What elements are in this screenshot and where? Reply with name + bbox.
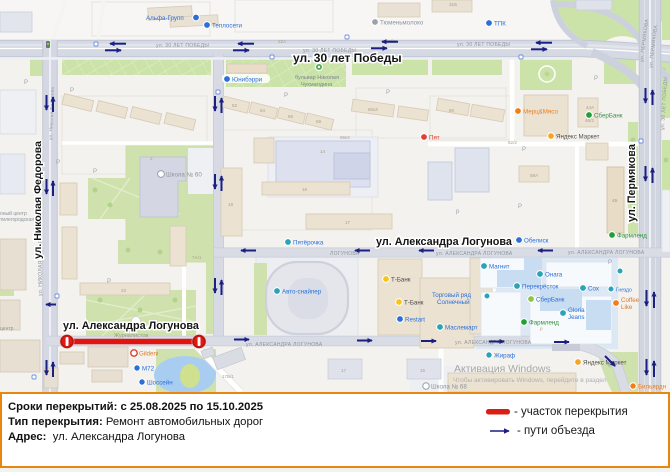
svg-text:17Б/1: 17Б/1 — [222, 374, 234, 379]
svg-text:Обелиск: Обелиск — [524, 238, 549, 245]
svg-text:СберБанк: СберБанк — [536, 297, 565, 304]
svg-text:Журналистов: Журналистов — [114, 333, 148, 339]
svg-text:Маслемарт: Маслемарт — [445, 325, 478, 332]
svg-text:бульвар Николая: бульвар Николая — [295, 75, 339, 81]
svg-text:Яндекс Маркет: Яндекс Маркет — [556, 134, 600, 141]
svg-text:Чукмалдина: Чукмалдина — [301, 82, 333, 88]
svg-text:Шоссейн: Шоссейн — [147, 380, 173, 387]
svg-text:Школа № 60: Школа № 60 — [166, 172, 202, 179]
svg-text:Юнибэрри: Юнибэрри — [232, 77, 263, 84]
svg-text:Пятёрочка: Пятёрочка — [293, 240, 324, 247]
svg-text:ул. АЛЕКСАНДРА ЛОГУНОВА: ул. АЛЕКСАНДРА ЛОГУНОВА — [246, 342, 323, 348]
svg-text:ул. 30 ЛЕТ ПОБЕДЫ: ул. 30 ЛЕТ ПОБЕДЫ — [457, 42, 510, 48]
svg-text:22: 22 — [121, 288, 127, 293]
svg-text:ул. Пермякова: ул. Пермякова — [626, 143, 638, 222]
svg-text:54: 54 — [260, 108, 266, 113]
svg-text:Р: Р — [70, 88, 74, 94]
svg-text:Сох: Сох — [588, 286, 600, 293]
svg-text:62/2: 62/2 — [508, 140, 517, 145]
svg-text:Gloria: Gloria — [568, 307, 585, 314]
svg-text:Теплосети: Теплосети — [212, 23, 243, 30]
svg-text:44А: 44А — [586, 105, 595, 110]
svg-text:18: 18 — [228, 202, 234, 207]
svg-text:Перекрёсток: Перекрёсток — [522, 284, 559, 291]
svg-text:центр: центр — [0, 326, 14, 332]
svg-text:Солнечный: Солнечный — [437, 299, 470, 306]
svg-text:Альфа-Групп: Альфа-Групп — [146, 15, 184, 22]
svg-text:2: 2 — [150, 156, 153, 161]
svg-text:ул. АЛЕКСАНДРА ЛОГУНОВА: ул. АЛЕКСАНДРА ЛОГУНОВА — [436, 251, 513, 257]
svg-text:66к3: 66к3 — [340, 135, 350, 140]
svg-text:Чтобы активировать Windows, пе: Чтобы активировать Windows, перейдите в … — [453, 376, 607, 384]
svg-text:15: 15 — [420, 368, 426, 373]
svg-text:31Б: 31Б — [449, 2, 457, 7]
svg-text:58А: 58А — [530, 173, 539, 178]
svg-text:ул. 30 ЛЕТ ПОБЕДЫ: ул. 30 ЛЕТ ПОБЕДЫ — [156, 43, 209, 49]
svg-text:16: 16 — [302, 187, 308, 192]
svg-text:Пят: Пят — [429, 135, 440, 142]
svg-text:Торговый ряд: Торговый ряд — [432, 292, 471, 299]
svg-text:Школа № 68: Школа № 68 — [431, 384, 467, 391]
svg-text:Т-Банк: Т-Банк — [391, 277, 411, 284]
svg-text:Р: Р — [518, 204, 522, 210]
svg-text:М72: М72 — [142, 366, 155, 373]
svg-text:Р: Р — [284, 93, 288, 99]
svg-text:Gildeni: Gildeni — [139, 351, 158, 358]
svg-text:Мерц&Мясо: Мерц&Мясо — [523, 109, 558, 116]
svg-text:Т-Банк: Т-Банк — [404, 300, 424, 307]
svg-text:52: 52 — [232, 103, 238, 108]
svg-text:14: 14 — [320, 149, 326, 154]
svg-text:Активация Windows: Активация Windows — [454, 363, 551, 375]
svg-text:Coffee: Coffee — [621, 297, 640, 304]
svg-text:58: 58 — [316, 119, 322, 124]
svg-text:Магнит: Магнит — [489, 264, 510, 271]
svg-text:ул. Александра Логунова: ул. Александра Логунова — [376, 236, 513, 248]
svg-text:60к3: 60к3 — [368, 107, 378, 112]
svg-text:Фармленд: Фармленд — [529, 320, 559, 327]
svg-text:СберБанк: СберБанк — [594, 113, 623, 120]
svg-text:56: 56 — [288, 114, 294, 119]
svg-text:Онага: Онага — [545, 272, 563, 279]
svg-text:Restart: Restart — [405, 317, 425, 324]
svg-text:Жираф: Жираф — [494, 353, 515, 360]
svg-text:Р: Р — [386, 90, 390, 96]
svg-text:ул. 30 лет Победы: ул. 30 лет Победы — [293, 51, 402, 65]
svg-text:4Б: 4Б — [612, 198, 618, 203]
svg-text:ул. Александра Логунова: ул. Александра Логунова — [63, 320, 200, 332]
svg-text:17: 17 — [345, 220, 351, 225]
svg-text:Яндекс Маркет: Яндекс Маркет — [583, 360, 627, 367]
svg-text:Бильярдн: Бильярдн — [638, 384, 666, 391]
svg-text:Р: Р — [24, 80, 28, 86]
svg-text:22А: 22А — [278, 39, 287, 44]
svg-text:Гнездо: Гнездо — [616, 288, 632, 294]
svg-text:ул. АЛЕКСАНДРА ЛОГУНОВА: ул. АЛЕКСАНДРА ЛОГУНОВА — [568, 250, 645, 256]
svg-text:р: р — [540, 326, 543, 331]
svg-text:Р: Р — [107, 279, 111, 285]
svg-text:Р: Р — [56, 160, 60, 166]
svg-text:Тюменьмолоко: Тюменьмолоко — [380, 20, 424, 27]
svg-text:оный центр: оный центр — [0, 210, 27, 217]
svg-text:ул. Николая Федорова: ул. Николая Федорова — [32, 141, 44, 259]
svg-text:Like: Like — [621, 304, 633, 311]
svg-text:тилегородская: тилегородская — [0, 217, 34, 223]
svg-text:Р: Р — [608, 260, 612, 266]
svg-text:Авто-снайпер: Авто-снайпер — [282, 289, 322, 296]
svg-text:Р: Р — [522, 147, 526, 153]
svg-text:60: 60 — [449, 108, 455, 113]
svg-text:Р: Р — [594, 76, 598, 82]
svg-text:ТПК: ТПК — [494, 21, 506, 28]
svg-text:Р: Р — [93, 169, 97, 175]
svg-text:Jeans: Jeans — [568, 314, 585, 321]
svg-text:7А/1: 7А/1 — [192, 255, 202, 260]
svg-text:ЛОГУНОВА: ЛОГУНОВА — [330, 251, 360, 257]
svg-text:17: 17 — [341, 368, 347, 373]
svg-text:Фармленд: Фармленд — [617, 233, 647, 240]
